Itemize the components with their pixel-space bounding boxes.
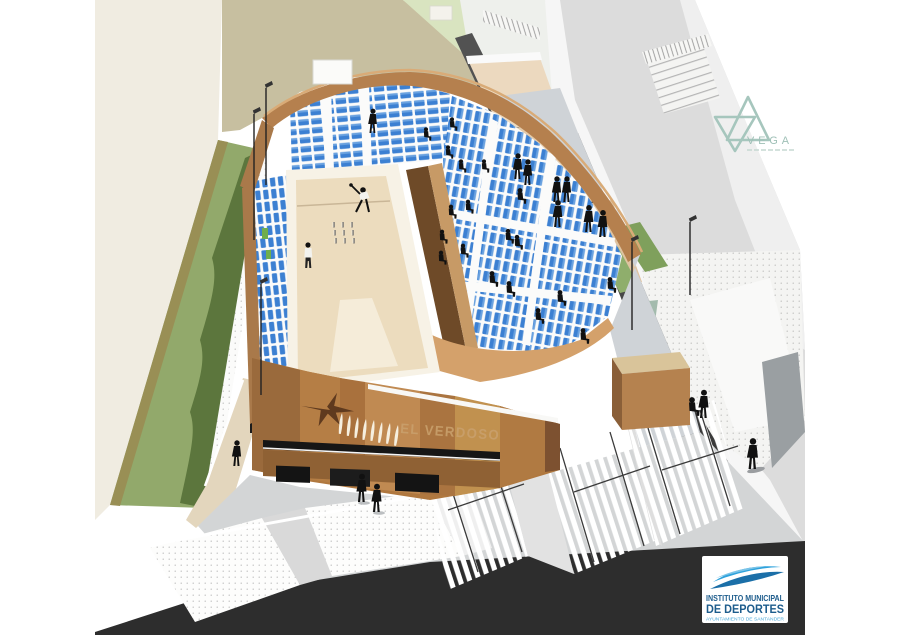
render-scene: EL VERDOSO [0, 0, 900, 635]
planter-green-2 [266, 250, 271, 259]
planter-green-1 [262, 228, 268, 239]
imd-logo: INSTITUTO MUNICIPAL DE DEPORTES AYUNTAMI… [702, 556, 788, 623]
imd-logo-line3: AYUNTAMIENTO DE SANTANDER [706, 617, 785, 623]
vega-logo-text: VEGA [747, 135, 793, 147]
rooftop-box [313, 60, 352, 84]
kiosk [612, 352, 690, 430]
imd-logo-line2: DE DEPORTES [706, 604, 784, 616]
facade-end-fold [545, 420, 560, 472]
imd-logo-line1: INSTITUTO MUNICIPAL [706, 593, 784, 603]
architectural-render: EL VERDOSO [0, 0, 900, 635]
rooftop-box-small [430, 6, 452, 20]
